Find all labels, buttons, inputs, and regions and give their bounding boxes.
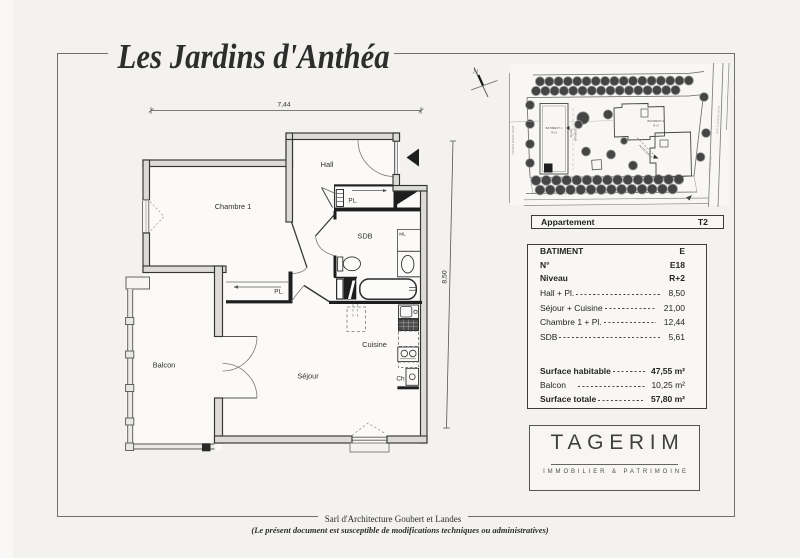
svg-text:Cuisine: Cuisine <box>362 340 387 349</box>
svg-text:ALLEE: ALLEE <box>569 129 573 138</box>
svg-text:Chambre 1: Chambre 1 <box>215 202 252 211</box>
svg-text:8,50: 8,50 <box>442 270 449 283</box>
svg-text:BATIMENT L: BATIMENT L <box>546 126 563 130</box>
svg-text:PL.: PL. <box>274 289 284 296</box>
svg-text:7,44: 7,44 <box>277 102 290 109</box>
svg-text:Séjour: Séjour <box>297 372 319 381</box>
svg-text:PL.: PL. <box>348 197 358 204</box>
svg-text:R+3: R+3 <box>653 124 659 128</box>
svg-text:ML: ML <box>399 232 406 237</box>
svg-text:R+3: R+3 <box>551 131 557 135</box>
svg-text:CHEMIN NOTRE DAME: CHEMIN NOTRE DAME <box>511 125 515 154</box>
svg-text:Ch: Ch <box>396 376 405 383</box>
svg-text:Balcon: Balcon <box>153 361 176 370</box>
svg-text:BATIMENT E: BATIMENT E <box>647 119 664 123</box>
svg-text:Hall: Hall <box>321 160 334 169</box>
svg-text:BATIMENT L: BATIMENT L <box>574 124 578 141</box>
svg-text:SDB: SDB <box>357 231 372 240</box>
